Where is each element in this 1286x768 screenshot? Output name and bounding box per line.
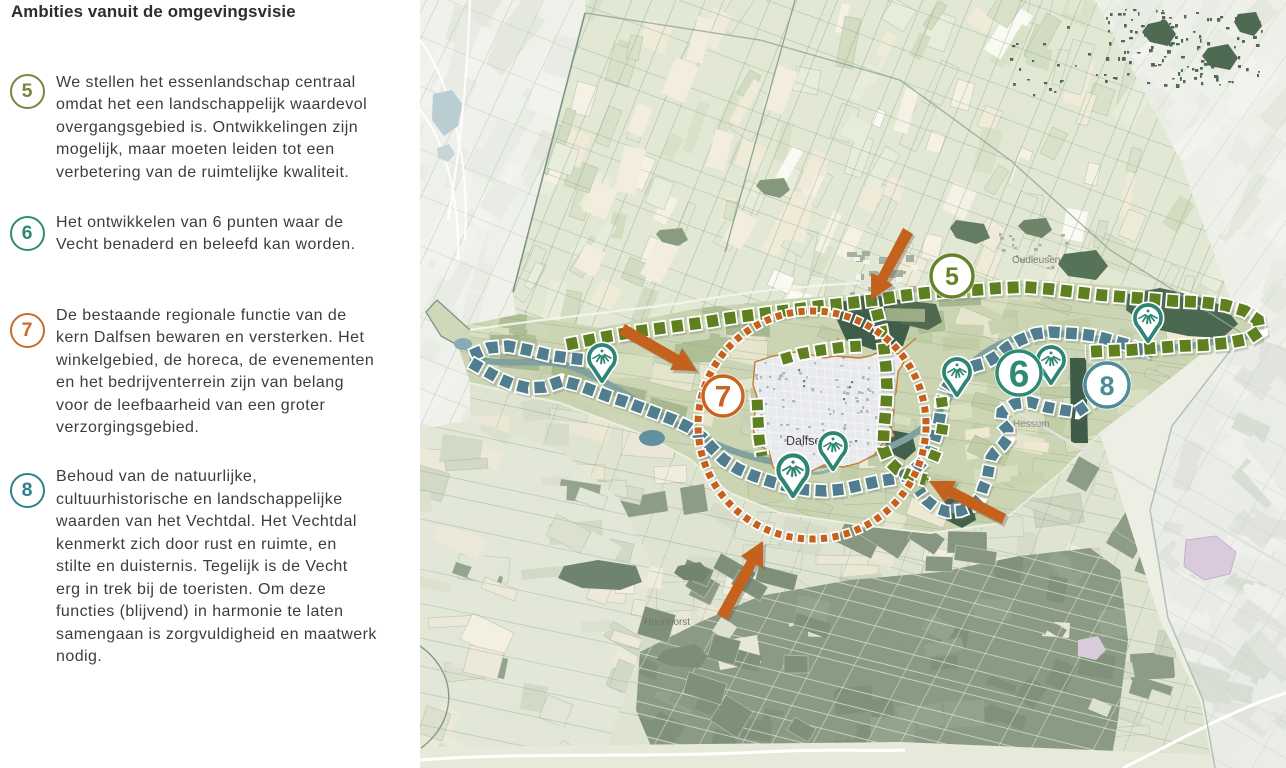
svg-text:Oudleusen: Oudleusen	[1012, 255, 1060, 266]
svg-text:Hoonhorst: Hoonhorst	[644, 617, 690, 628]
svg-text:7: 7	[715, 381, 732, 414]
svg-text:Hessum: Hessum	[1013, 419, 1050, 430]
svg-text:5: 5	[945, 263, 959, 291]
svg-text:8: 8	[1099, 371, 1114, 401]
svg-text:6: 6	[1009, 354, 1030, 395]
